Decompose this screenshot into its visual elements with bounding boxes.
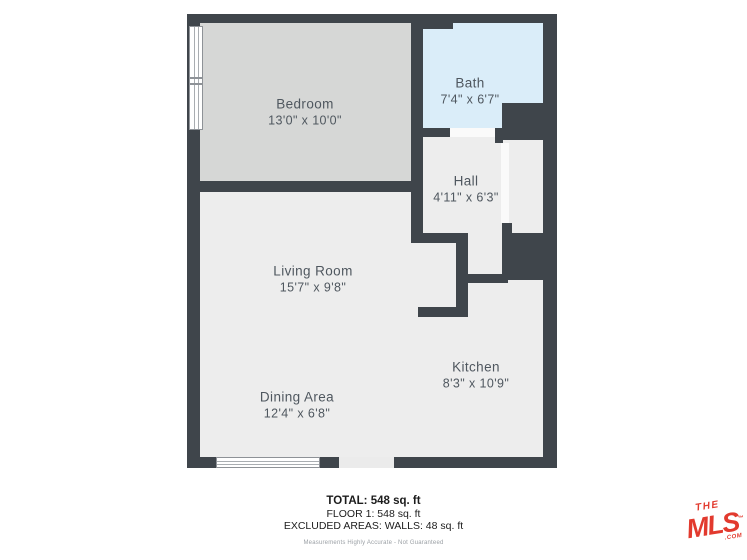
kitchen-label: Kitchen 8'3" x 10'9" [443,359,509,392]
dining-window [216,457,320,468]
wall-bedroom-bottom [199,181,423,192]
area-summary: TOTAL: 548 sq. ft FLOOR 1: 548 sq. ft EX… [0,495,747,546]
wall-top [187,14,557,23]
bedroom-label: Bedroom 13'0" x 10'0" [268,96,342,129]
wall-niche-bottom [418,307,468,317]
hall-label: Hall 4'11" x 6'3" [433,173,498,206]
themls-logo-tm: ™ [738,515,745,522]
wall-closet-door-jamb [502,223,512,233]
window-mullion [190,77,202,79]
bath-door-opening [450,128,495,137]
bedroom-dims: 13'0" x 10'0" [268,113,342,129]
wall-bath-bottom [423,128,450,137]
bath-dims: 7'4" x 6'7" [440,92,499,108]
window-mullion [190,83,202,85]
bath-name: Bath [440,75,499,92]
bath-label: Bath 7'4" x 6'7" [440,75,499,108]
hall-dims: 4'11" x 6'3" [433,190,498,206]
living-room-dims: 15'7" x 9'8" [273,280,352,296]
wall-bath-top-notch [423,23,453,29]
kitchen-dims: 8'3" x 10'9" [443,376,509,392]
bedroom-window [189,26,203,130]
living-room-label: Living Room 15'7" x 9'8" [273,263,352,296]
wall-bedroom-hall-vertical [411,23,423,243]
entry-opening [339,457,394,468]
bedroom-name: Bedroom [268,96,342,113]
dining-area-name: Dining Area [260,389,334,406]
window-frame-line [217,461,319,462]
wall-right [543,14,557,468]
closet-door-opening [501,143,509,223]
kitchen-name: Kitchen [443,359,509,376]
dining-area-label: Dining Area 12'4" x 6'8" [260,389,334,422]
excluded-area-text: EXCLUDED AREAS: WALLS: 48 sq. ft [0,520,747,532]
themls-logo-mls: MLS™ [684,507,743,541]
floorplan-page: Bedroom 13'0" x 10'0" Bath 7'4" x 6'7" H… [0,0,747,560]
total-area-text: TOTAL: 548 sq. ft [0,495,747,508]
living-room-name: Living Room [273,263,352,280]
wall-niche-vertical [456,243,468,317]
hall-name: Hall [433,173,498,190]
dining-area-dims: 12'4" x 6'8" [260,406,334,422]
themls-logo: THE MLS™ .COM [683,497,747,560]
wall-block-kitchen-top [502,233,543,280]
floor1-area-text: FLOOR 1: 548 sq. ft [0,508,747,520]
wall-hall-bottom [411,233,468,243]
disclaimer-text: Measurements Highly Accurate - Not Guara… [0,540,747,546]
wall-block-right-of-bath [502,103,543,140]
window-frame-line [217,464,319,465]
